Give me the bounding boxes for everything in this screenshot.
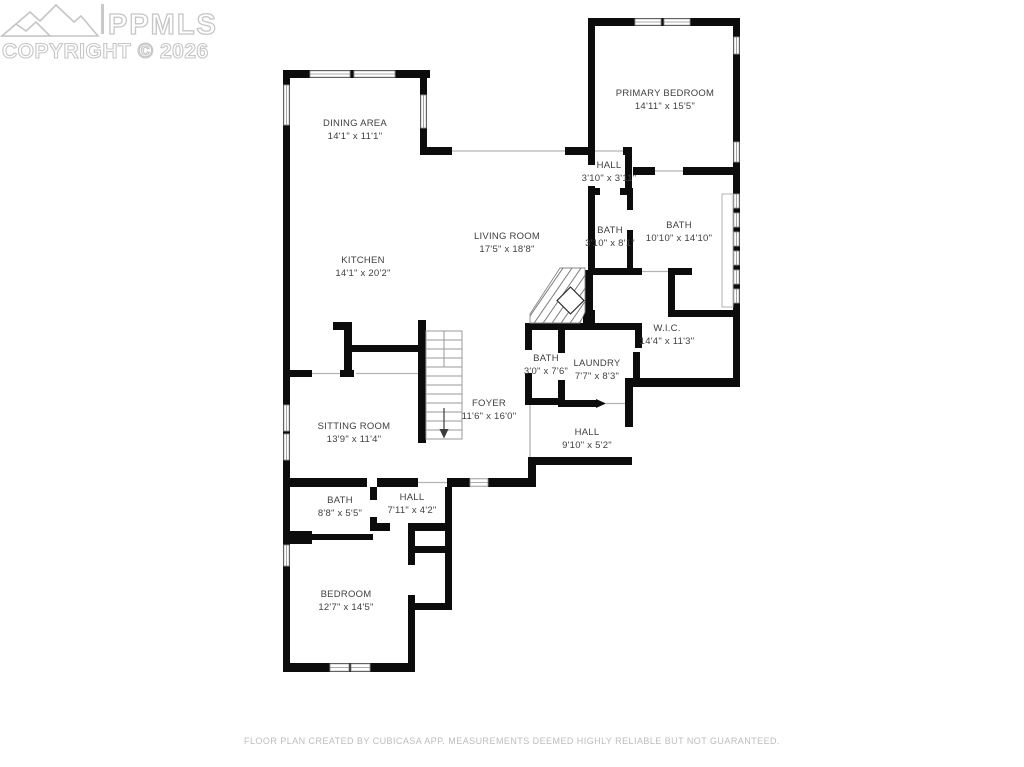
room-dims: 3'10" x 3'11" xyxy=(582,172,637,185)
floorplan-drawing: PPMLS COPYRIGHT © 2026 xyxy=(0,0,1024,767)
room-label-sitting-room: SITTING ROOM 13'9" x 11'4" xyxy=(318,420,391,446)
staircase xyxy=(426,331,462,439)
logo-divider xyxy=(101,4,104,34)
room-name: KITCHEN xyxy=(335,254,390,267)
room-name: LIVING ROOM xyxy=(474,230,540,243)
room-name: BATH xyxy=(585,224,635,237)
room-label-dining-area: DINING AREA 14'1" x 11'1" xyxy=(323,117,387,143)
room-name: SITTING ROOM xyxy=(318,420,391,433)
room-dims: 14'1" x 20'2" xyxy=(335,267,390,280)
room-name: BEDROOM xyxy=(318,588,373,601)
laundry-door-arrow xyxy=(596,399,606,408)
room-name: HALL xyxy=(582,159,637,172)
room-dims: 9'10" x 5'2" xyxy=(562,439,612,452)
room-name: PRIMARY BEDROOM xyxy=(616,87,714,100)
room-name: HALL xyxy=(387,491,436,504)
room-label-kitchen: KITCHEN 14'1" x 20'2" xyxy=(335,254,390,280)
room-name: FOYER xyxy=(462,397,517,410)
room-label-bath-ensuite-small: BATH 3'10" x 8'1" xyxy=(585,224,635,250)
room-dims: 11'6" x 16'0" xyxy=(462,410,517,423)
watermark-brand: PPMLS xyxy=(108,9,218,41)
room-name: DINING AREA xyxy=(323,117,387,130)
room-name: LAUNDRY xyxy=(574,357,621,370)
room-name: W.I.C. xyxy=(640,322,695,335)
room-label-primary-bedroom: PRIMARY BEDROOM 14'11" x 15'5" xyxy=(616,87,714,113)
room-dims: 10'10" x 14'10" xyxy=(646,232,712,245)
room-dims: 7'11" x 4'2" xyxy=(387,504,436,517)
stairs-down-arrow xyxy=(440,429,449,439)
room-name: BATH xyxy=(646,219,712,232)
room-dims: 8'8" x 5'5" xyxy=(318,507,362,520)
room-dims: 14'11" x 15'5" xyxy=(616,100,714,113)
room-label-foyer: FOYER 11'6" x 16'0" xyxy=(462,397,517,423)
room-label-bath-lower: BATH 8'8" x 5'5" xyxy=(318,494,362,520)
floorplan-page: PPMLS COPYRIGHT © 2026 DINING AREA 14'1"… xyxy=(0,0,1024,767)
room-label-hall-upper: HALL 3'10" x 3'11" xyxy=(582,159,637,185)
room-label-hall-center: HALL 9'10" x 5'2" xyxy=(562,426,612,452)
footer-disclaimer: FLOOR PLAN CREATED BY CUBICASA APP. MEAS… xyxy=(0,736,1024,746)
room-label-laundry: LAUNDRY 7'7" x 8'3" xyxy=(574,357,621,383)
room-dims: 3'10" x 8'1" xyxy=(585,237,635,250)
watermark-copyright: COPYRIGHT © 2026 xyxy=(2,40,209,63)
room-name: HALL xyxy=(562,426,612,439)
room-dims: 12'7" x 14'5" xyxy=(318,601,373,614)
room-label-wic: W.I.C. 14'4" x 11'3" xyxy=(640,322,695,348)
room-dims: 3'0" x 7'6" xyxy=(524,365,568,378)
room-label-hall-lower: HALL 7'11" x 4'2" xyxy=(387,491,436,517)
room-dims: 7'7" x 8'3" xyxy=(574,370,621,383)
room-label-bath-primary: BATH 10'10" x 14'10" xyxy=(646,219,712,245)
room-name: BATH xyxy=(524,352,568,365)
room-label-bath-center: BATH 3'0" x 7'6" xyxy=(524,352,568,378)
watermark-logo: PPMLS COPYRIGHT © 2026 xyxy=(2,4,218,63)
room-label-living-room: LIVING ROOM 17'5" x 18'8" xyxy=(474,230,540,256)
room-label-bedroom: BEDROOM 12'7" x 14'5" xyxy=(318,588,373,614)
room-dims: 14'4" x 11'3" xyxy=(640,335,695,348)
room-dims: 14'1" x 11'1" xyxy=(323,130,387,143)
room-dims: 13'9" x 11'4" xyxy=(318,433,391,446)
room-name: BATH xyxy=(318,494,362,507)
room-dims: 17'5" x 18'8" xyxy=(474,243,540,256)
bath-cabinet-outline xyxy=(722,194,733,307)
